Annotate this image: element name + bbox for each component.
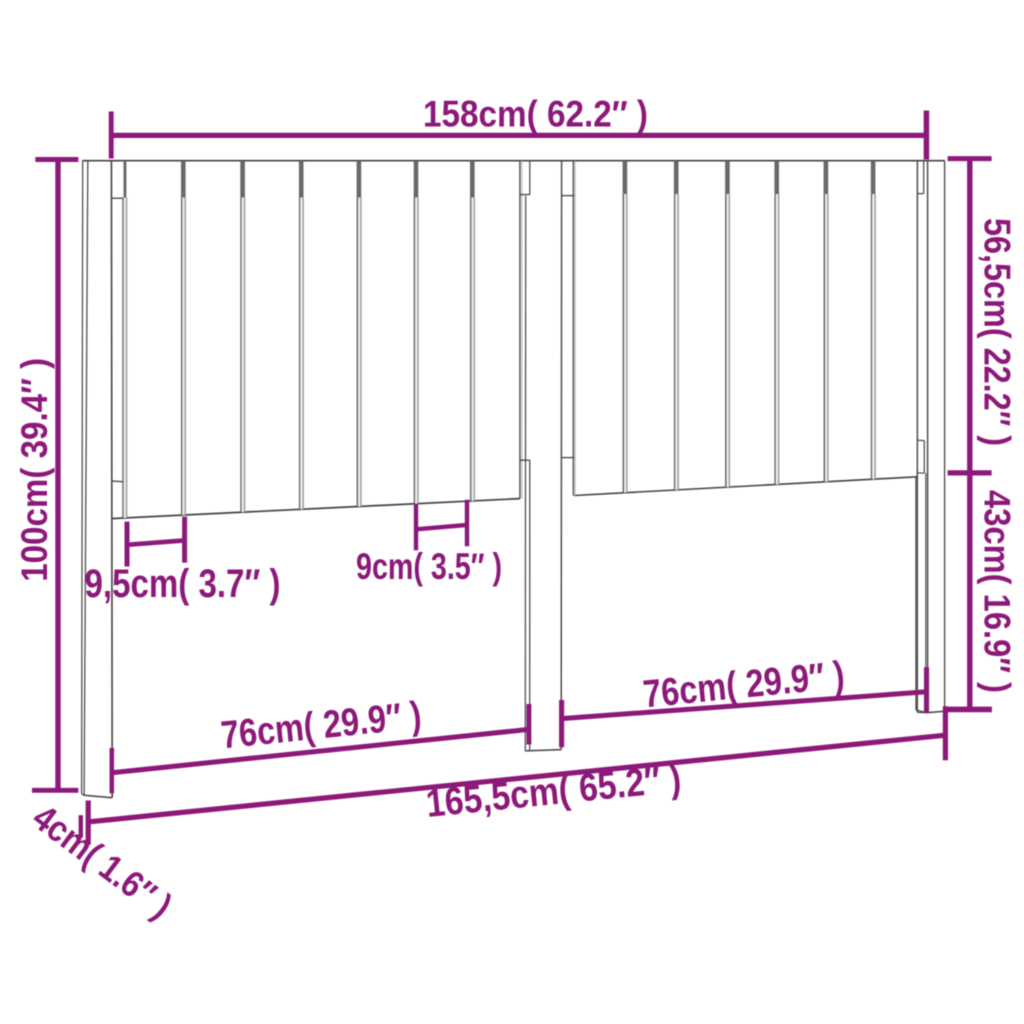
svg-text:43cm( 16.9″ ): 43cm( 16.9″ ) xyxy=(977,490,1018,693)
svg-text:158cm( 62.2″ ): 158cm( 62.2″ ) xyxy=(423,94,648,135)
svg-text:9,5cm( 3.7″ ): 9,5cm( 3.7″ ) xyxy=(85,562,281,606)
svg-text:100cm( 39.4″ ): 100cm( 39.4″ ) xyxy=(14,358,55,582)
svg-text:9cm( 3.5″ ): 9cm( 3.5″ ) xyxy=(356,546,502,587)
svg-text:56,5cm( 22.2″ ): 56,5cm( 22.2″ ) xyxy=(977,218,1018,446)
